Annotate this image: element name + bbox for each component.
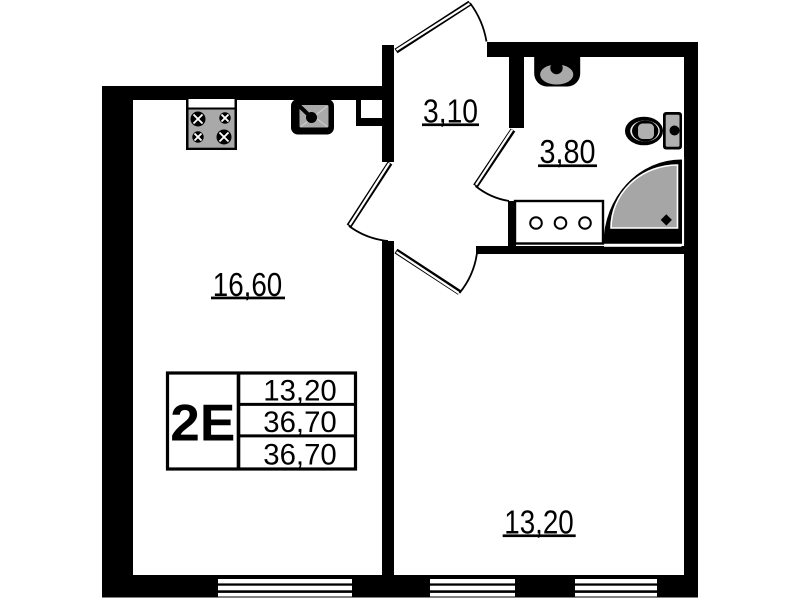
svg-text:36,70: 36,70: [263, 406, 337, 439]
svg-text:13,20: 13,20: [263, 375, 337, 408]
svg-text:2Е: 2Е: [170, 395, 235, 453]
svg-text:36,70: 36,70: [263, 439, 337, 472]
